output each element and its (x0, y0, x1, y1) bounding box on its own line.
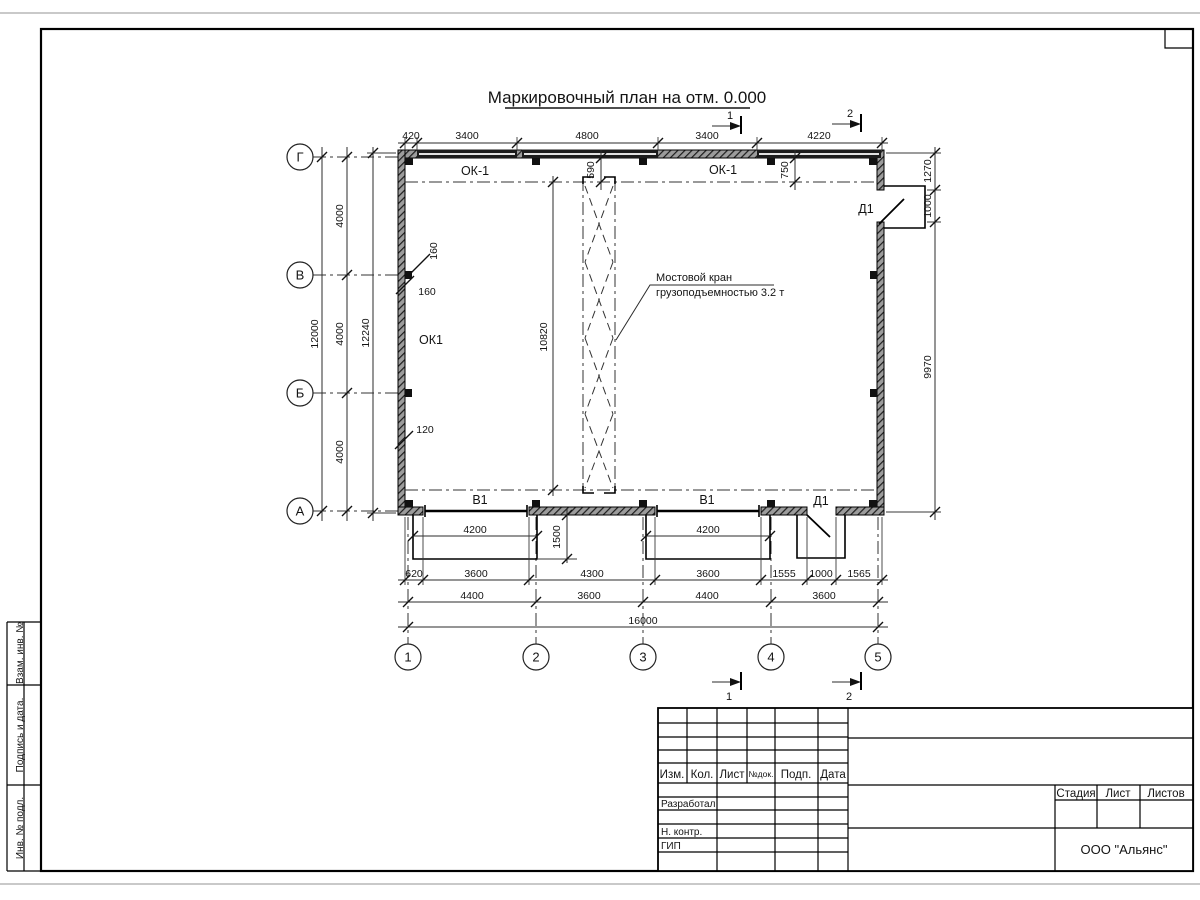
tb-stage-stadiya: Стадия (1056, 788, 1095, 800)
axis-col-1: 1 (404, 650, 411, 665)
side-stamp: Взам. инв. № Подпись и дата. Инв. № подл… (7, 622, 41, 871)
walls (398, 150, 884, 516)
wall-bottom-1 (398, 507, 423, 515)
dim-right-2: 9970 (922, 355, 934, 379)
tb-stage-listov: Листов (1147, 788, 1184, 800)
dim-pit-left: 4200 (463, 524, 487, 536)
dim-b2-1: 3600 (464, 568, 488, 580)
dimension-lines (322, 143, 935, 627)
door-top-label: Д1 (858, 202, 873, 216)
tb-col-data: Дата (820, 769, 846, 781)
dim-wall-offset: 120 (416, 424, 434, 436)
dim-b3-3: 3600 (812, 590, 836, 602)
tb-row-nkontr: Н. контр. (661, 827, 702, 838)
dim-b3-0: 4400 (460, 590, 484, 602)
section-marks-bottom: 1 2 (712, 672, 861, 703)
dim-b2-6: 1565 (847, 568, 871, 580)
plan-marks: ОК-1 ОК-1 ОК1 (419, 163, 737, 347)
axis-row-a: А (296, 504, 305, 519)
loading-pits (413, 515, 845, 559)
dim-b2-4: 1555 (772, 568, 796, 580)
door-leaf-bottom (807, 515, 830, 537)
dim-crane-span: 10820 (538, 322, 550, 351)
pilasters (405, 158, 877, 507)
dim-b2-5: 1000 (809, 568, 833, 580)
dim-top-3: 3400 (695, 130, 719, 142)
dim-top-2: 4800 (575, 130, 599, 142)
axis-row-b: Б (296, 386, 305, 401)
tb-stage-list: Лист (1106, 788, 1132, 800)
dim-b3-2: 4400 (695, 590, 719, 602)
dim-bottom-total: 16000 (628, 615, 657, 627)
tb-col-podp: Подп. (781, 769, 812, 781)
dim-b3-1: 3600 (577, 590, 601, 602)
dim-right-1: 1000 (922, 194, 934, 218)
title-block: Изм. Кол. Лист №док. Подп. Дата Разработ… (658, 708, 1193, 871)
window-top-left-label: ОК-1 (461, 164, 489, 178)
section-mark-2-label: 2 (847, 108, 853, 120)
axis-bubbles-bottom: 1 2 3 4 5 (395, 644, 891, 670)
dim-crane-offset-right: 750 (779, 161, 791, 179)
tb-col-ndok: №док. (749, 769, 774, 779)
dim-b2-2: 4300 (580, 568, 604, 580)
dim-pilaster-2: 160 (418, 286, 436, 298)
wall-right-lower (877, 222, 884, 515)
crane-note-line1: Мостовой кран (656, 272, 732, 284)
dim-pit-depth: 1500 (551, 525, 563, 549)
company-name: ООО "Альянс" (1081, 842, 1168, 857)
dim-right-0: 1270 (922, 159, 934, 183)
section-mark-2-label-bottom: 2 (846, 691, 852, 703)
gate-left-label: В1 (472, 493, 487, 507)
cad-canvas: Взам. инв. № Подпись и дата. Инв. № подл… (0, 0, 1200, 900)
door-top-right: Д1 (858, 186, 925, 228)
dim-pit-right: 4200 (696, 524, 720, 536)
dim-pilaster-1: 160 (428, 242, 440, 260)
dim-crane-offset-left: 590 (585, 161, 597, 179)
axis-row-g: Г (296, 150, 303, 165)
gate-right-label: В1 (699, 493, 714, 507)
wall-bottom-2 (529, 507, 655, 515)
wall-left (398, 150, 405, 515)
dim-left-total: 12000 (309, 319, 321, 348)
section-mark-1-label-bottom: 1 (726, 691, 732, 703)
window-strips (417, 150, 881, 159)
crane-note-line2: грузоподъемностью 3.2 т (656, 287, 784, 299)
stamp-inv-podl: Инв. № подл. (15, 797, 26, 859)
axis-col-3: 3 (639, 650, 646, 665)
axis-col-5: 5 (874, 650, 881, 665)
drawing-sheet: Взам. инв. № Подпись и дата. Инв. № подл… (0, 0, 1200, 900)
axis-col-2: 2 (532, 650, 539, 665)
dim-left-bay-1: 4000 (334, 322, 346, 346)
wall-bottom-3 (761, 507, 807, 515)
stamp-podpis-data: Подпись и дата. (15, 698, 26, 773)
tb-col-list: Лист (720, 769, 746, 781)
page-title: Маркировочный план на отм. 0.000 (488, 88, 767, 107)
tb-col-izm: Изм. (660, 769, 685, 781)
dim-top-0: 420 (402, 130, 420, 142)
axis-col-4: 4 (767, 650, 774, 665)
door-leaf-top (879, 199, 904, 224)
dim-left-bay-2: 4000 (334, 440, 346, 464)
dim-top-1: 3400 (455, 130, 479, 142)
tb-row-razrabotal: Разработал (661, 798, 716, 810)
dim-left-overall: 12240 (360, 318, 372, 347)
plan-title: Маркировочный план на отм. 0.000 (488, 88, 767, 108)
tb-col-kol: Кол. (691, 769, 714, 781)
dim-b2-0: 620 (405, 568, 423, 580)
tb-row-gip: ГИП (661, 841, 681, 852)
dimension-ticks (317, 138, 940, 632)
section-marks-top: 1 2 (712, 108, 861, 134)
corner-stamp-box (1165, 29, 1193, 48)
bridge-crane: Мостовой кран грузоподъемностью 3.2 т (405, 177, 876, 493)
section-mark-1-label: 1 (727, 110, 733, 122)
stamp-vzam-inv: Взам. инв. № (15, 622, 26, 684)
window-left-wall-label: ОК1 (419, 333, 443, 347)
extension-lines (367, 137, 941, 585)
window-top-right-label: ОК-1 (709, 163, 737, 177)
door-bottom: Д1 (807, 494, 830, 537)
wall-bottom-4 (836, 507, 884, 515)
axis-row-v: В (296, 268, 305, 283)
crane-bridge-symbol (585, 186, 613, 488)
dim-top-4: 4220 (807, 130, 831, 142)
dim-left-bay-0: 4000 (334, 204, 346, 228)
door-bottom-label: Д1 (813, 494, 828, 508)
dim-b2-3: 3600 (696, 568, 720, 580)
